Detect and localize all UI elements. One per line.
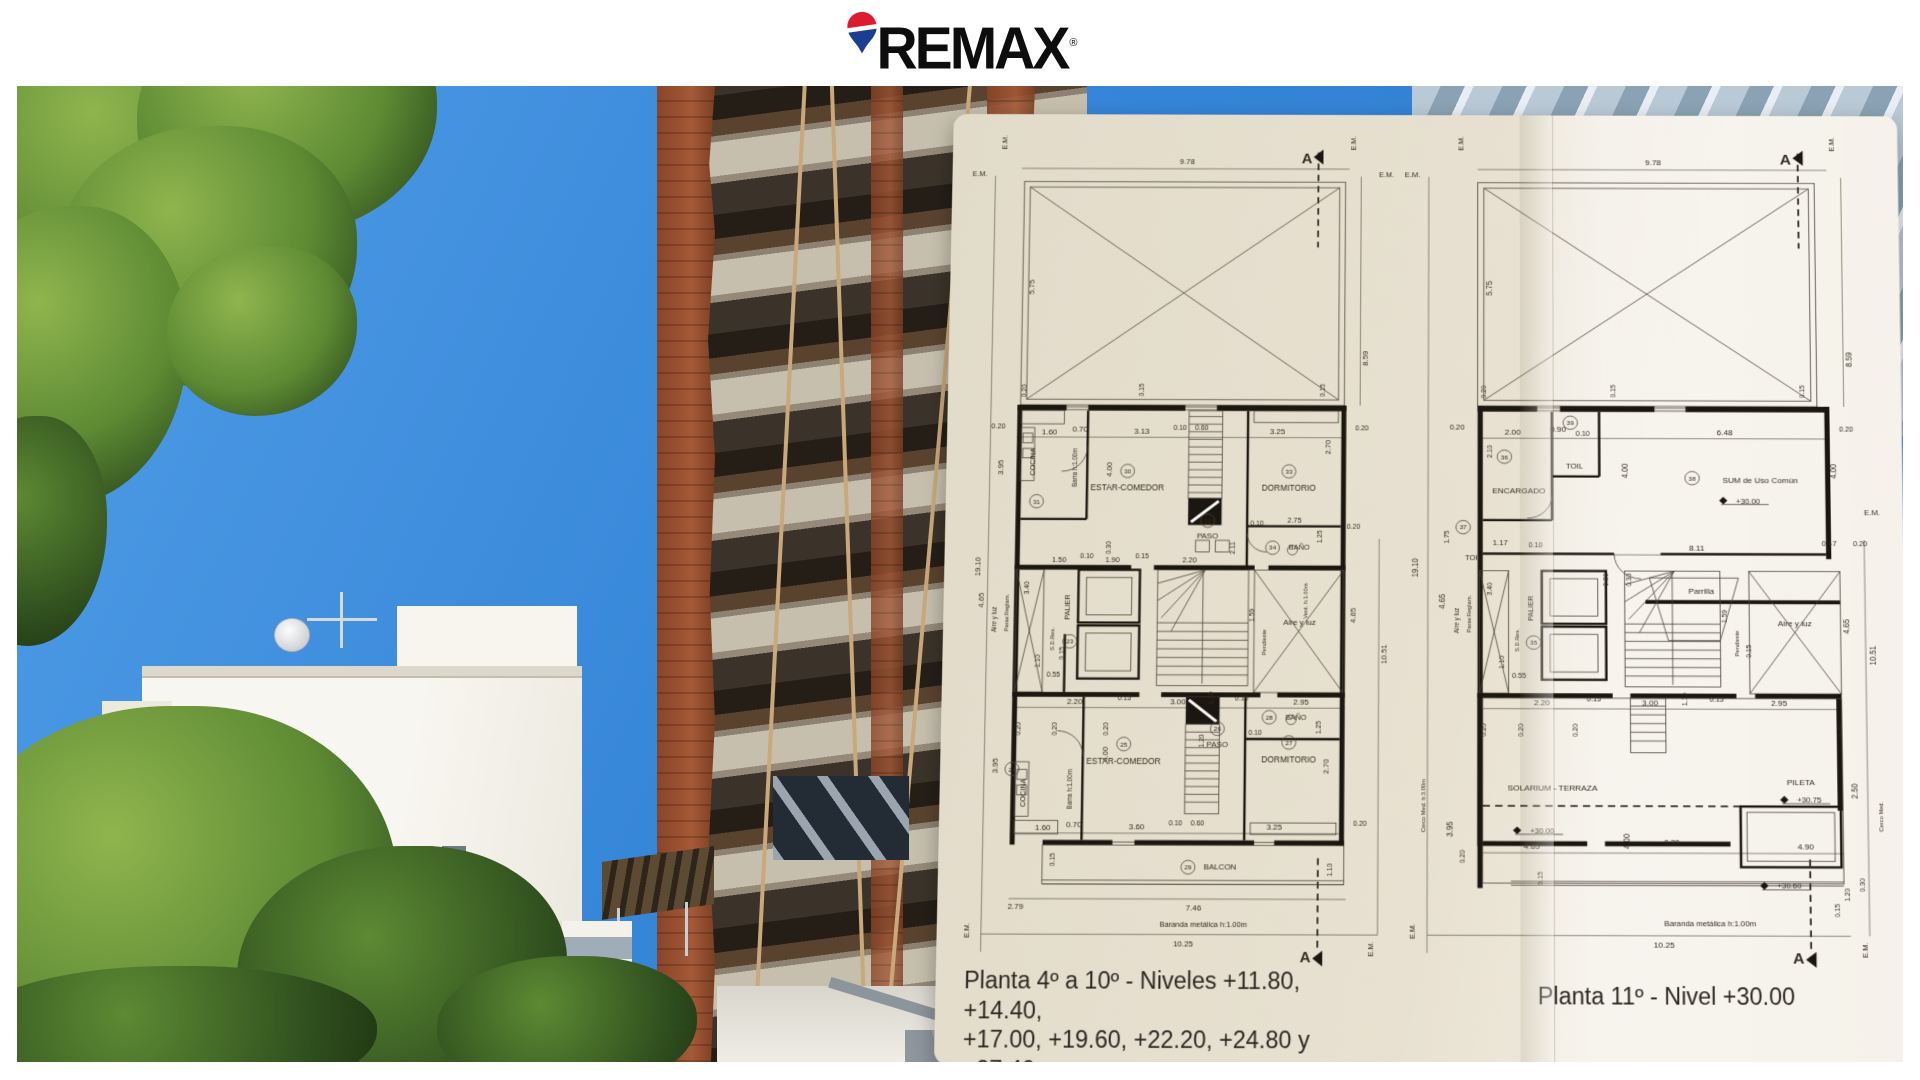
left-label: DORMITORIO <box>1261 755 1316 764</box>
left-label: 7.46 <box>1186 904 1202 913</box>
right-label: +30.60 <box>1777 882 1801 891</box>
right-label: +30.00 <box>1736 497 1760 506</box>
left-label: BAÑO <box>1289 543 1310 552</box>
left-label: E.M. <box>972 169 987 178</box>
remax-logo: REMAX® <box>845 15 1076 72</box>
left-label: E.M. <box>1379 170 1394 179</box>
dark-stair-structure <box>773 776 909 860</box>
right-label: 0.20 <box>1481 723 1488 736</box>
left-label: 0.20 <box>1022 384 1029 397</box>
right-label: 1.10 <box>1682 693 1689 706</box>
right-label: 4.00 <box>1621 463 1630 478</box>
left-label: S.D.Res. <box>1050 627 1057 650</box>
right-label: A <box>1793 952 1805 968</box>
left-label: 2.75 <box>1287 515 1301 524</box>
left-label: 28 <box>1266 715 1274 722</box>
left-label: 0.20 <box>1355 425 1369 432</box>
right-label: 4.65 <box>1437 593 1446 609</box>
left-label: Pendiente <box>1262 629 1268 655</box>
left-label: 2.11 <box>1230 542 1237 555</box>
left-label: 2.79 <box>1008 901 1024 910</box>
left-label: E.M. <box>962 922 972 937</box>
left-label: COCINA <box>1018 779 1028 808</box>
left-label: 2.20 <box>1067 697 1083 706</box>
left-label: PALIER <box>1063 595 1073 620</box>
brand-text: REMAX® <box>877 19 1076 78</box>
caption-planta-11: Planta 11º - Nivel +30.00 <box>1538 982 1884 1012</box>
left-label: Parav.Reglam. <box>1004 594 1011 632</box>
right-label: 0.15 <box>1835 904 1843 918</box>
right-label: 0.20 <box>1460 850 1467 864</box>
right-label: Aire y luz <box>1778 619 1812 628</box>
right-label: 2.20 <box>1534 698 1551 707</box>
satellite-dish <box>274 618 310 652</box>
right-label: 37 <box>1459 525 1467 532</box>
right-label: 2.95 <box>1771 699 1788 708</box>
floorplan-planta-4-a-10: E.M.E.M.9.78AE.M.E.M.19.105.758.590.200.… <box>952 124 1396 967</box>
left-label: 3.95 <box>991 758 1001 773</box>
left-label: Aire y luz <box>1283 618 1316 627</box>
right-label: 2.50 <box>1850 783 1860 799</box>
right-label: Cerco Med. <box>1878 801 1885 832</box>
right-label: E.M. <box>1827 137 1836 151</box>
left-label: 1.10 <box>1034 654 1041 667</box>
left-label: 0.15 <box>1118 695 1132 702</box>
left-label: 0.20 <box>1353 821 1367 828</box>
left-label: 1.60 <box>1035 823 1051 832</box>
left-label: 0.20 <box>1015 722 1022 735</box>
right-label: 9.78 <box>1645 159 1662 168</box>
left-label: 0.60 <box>1191 821 1205 828</box>
right-label: 0.20 <box>1481 385 1488 398</box>
left-label: 3.25 <box>1266 823 1282 832</box>
left-label: 4.00 <box>1105 462 1114 477</box>
listing-photo: E.M.E.M.9.78AE.M.E.M.19.105.758.590.200.… <box>17 86 1903 1062</box>
parapet <box>142 666 582 678</box>
right-label: 1.20 <box>1845 888 1853 902</box>
left-label: 10.25 <box>1173 939 1193 948</box>
right-label: +30.00 <box>1530 826 1554 835</box>
left-label: 4.65 <box>976 593 986 608</box>
right-label: PALIER <box>1526 596 1535 621</box>
right-label: 0.10 <box>1528 542 1542 549</box>
right-label: 3.95 <box>1445 821 1455 837</box>
left-label: 3.95 <box>996 460 1005 475</box>
level-marker-icon <box>1760 882 1768 890</box>
left-label: 0.70 <box>1066 820 1082 829</box>
left-label: 0.15 <box>1320 384 1327 397</box>
right-label: 0.15 <box>1587 696 1601 703</box>
left-label: Barra h:1.00m <box>1072 448 1080 487</box>
right-label: 0.15 <box>1746 645 1753 658</box>
right-label: 35 <box>1530 640 1538 647</box>
left-label: 1.50 <box>1052 555 1067 564</box>
floorplan-planta-11: E.M.E.M.9.78AE.M.19.105.758.590.200.150.… <box>1395 125 1899 968</box>
left-label: 1.20 <box>1198 734 1205 747</box>
floorplan-paper: E.M.E.M.9.78AE.M.E.M.19.105.758.590.200.… <box>934 114 1903 1062</box>
scaffold-leg <box>685 902 688 956</box>
left-label: 2.95 <box>1293 697 1309 706</box>
left-label: 34 <box>1269 545 1277 552</box>
right-label: A <box>1780 153 1792 168</box>
left-label: 0.15 <box>1135 553 1149 560</box>
left-label: BALCON <box>1203 863 1236 872</box>
right-label: Parrilla <box>1688 587 1714 596</box>
right-label: Aire y luz <box>1454 608 1461 634</box>
right-label: Parav.Reglam. <box>1467 595 1473 633</box>
right-label: 8.11 <box>1689 544 1705 553</box>
left-label: 0.55 <box>1047 671 1061 678</box>
registered-mark: ® <box>1069 36 1077 48</box>
left-label: A <box>1300 950 1312 966</box>
caption-line: Planta 4º a 10º - Niveles +11.80, +14.40… <box>963 966 1330 1026</box>
right-label: 10.51 <box>1869 646 1879 665</box>
right-label: E.M. <box>1864 509 1880 518</box>
right-label: 0.10 <box>1576 431 1590 438</box>
left-label: BAÑO <box>1285 713 1307 722</box>
right-label: 2.00 <box>1505 428 1522 437</box>
left-label: 3.60 <box>1129 822 1145 831</box>
right-label: 4.65 <box>1841 618 1851 634</box>
right-label: 0.20 <box>1518 723 1525 736</box>
left-label: 30 <box>1124 468 1132 475</box>
left-label: E.M. <box>1349 136 1358 150</box>
brand-name: REMAX <box>877 15 1068 82</box>
left-label: 0.30 <box>1106 541 1113 554</box>
header: REMAX® <box>0 0 1920 86</box>
left-label: 0.15 <box>1058 647 1065 660</box>
right-label: 36 <box>1501 454 1509 461</box>
left-label: ESTAR-COMEDOR <box>1090 483 1164 492</box>
level-marker-icon <box>1513 826 1521 834</box>
right-label: E.M. <box>1860 943 1870 958</box>
left-label: 0.20 <box>1103 722 1110 735</box>
left-label: 1.25 <box>1316 721 1323 734</box>
right-label: 4.00 <box>1829 463 1839 478</box>
right-label: 19.10 <box>1410 558 1419 578</box>
right-label: 0.30 <box>1859 878 1867 892</box>
left-label: 1.59 <box>1249 608 1256 621</box>
left-label: 0.20 <box>991 421 1006 430</box>
right-label: E.M. <box>1407 924 1417 939</box>
right-label: 2.10 <box>1487 445 1494 458</box>
left-label: 3.40 <box>1024 581 1031 594</box>
right-label: 1.59 <box>1721 610 1728 623</box>
left-label: 1.10 <box>1327 863 1334 877</box>
left-label: 0.70 <box>1072 425 1087 434</box>
level-marker-icon <box>1719 497 1727 505</box>
left-label: 1.60 <box>1042 427 1057 436</box>
left-label: 4.00 <box>1100 747 1110 762</box>
left-label: 4.65 <box>1348 608 1357 623</box>
right-label: E.M. <box>1456 136 1465 150</box>
right-label: 0.15 <box>1537 872 1544 886</box>
left-label: 10.51 <box>1379 645 1388 664</box>
left-label: 0.15 <box>1139 383 1146 396</box>
right-label: Cerco Med. h:3.00m <box>1421 779 1427 832</box>
left-plan-geometry <box>980 149 1381 967</box>
left-label: 3.13 <box>1134 427 1149 436</box>
right-label: Baranda metálica h:1.00m <box>1664 919 1756 928</box>
right-label: 0.30 <box>1603 573 1610 586</box>
right-label: 3.40 <box>1487 582 1494 595</box>
right-label: TOIL <box>1465 553 1482 562</box>
right-label: 5.75 <box>1485 280 1494 295</box>
left-label: ESTAR-COMEDOR <box>1086 757 1161 766</box>
right-label: 6.48 <box>1717 428 1734 437</box>
left-label: 2.70 <box>1323 440 1332 455</box>
left-label: 33 <box>1285 469 1293 476</box>
left-label: 27 <box>1285 740 1293 747</box>
left-label: 0.10 <box>1248 730 1262 737</box>
right-label: 0.20 <box>1450 423 1465 432</box>
right-label: 38 <box>1688 476 1696 483</box>
right-label: 4.00 <box>1623 833 1633 849</box>
right-label: 1.10 <box>1499 655 1506 668</box>
right-label: 0.15 <box>1710 697 1724 704</box>
left-label: Aire y luz <box>991 607 999 633</box>
right-label: 0.20 <box>1837 724 1845 737</box>
left-label: 31 <box>1033 499 1041 506</box>
left-label: 0.20 <box>1347 524 1361 531</box>
caption-line: Planta 11º - Nivel +30.00 <box>1538 982 1884 1012</box>
left-label: 19.10 <box>973 557 983 576</box>
left-label: 25 <box>1120 741 1128 748</box>
left-label: DORMITORIO <box>1262 484 1316 493</box>
antenna <box>307 618 377 621</box>
left-label: 0.10 <box>1174 425 1188 432</box>
tree-foliage <box>167 246 357 416</box>
left-label: Vent. h:1.60m <box>1303 583 1309 619</box>
left-label: Barra h:1.00m <box>1067 769 1075 809</box>
left-label: 0.15 <box>1049 853 1056 867</box>
right-label: 0.20 <box>1572 723 1579 736</box>
right-label: 0.15 <box>1799 385 1806 398</box>
right-label: TOIL <box>1566 462 1583 471</box>
right-label: S.D.Res. <box>1515 628 1521 651</box>
left-label: 9.78 <box>1180 157 1195 166</box>
right-label: PILETA <box>1787 778 1816 787</box>
right-label: 0.20 <box>1839 427 1853 434</box>
left-label: 32 <box>1204 518 1212 525</box>
caption-line: +17.00, +19.60, +22.20, +24.80 y +27.40 <box>962 1025 1330 1062</box>
left-label: A <box>1302 152 1313 167</box>
left-label: 0.20 <box>1051 722 1058 735</box>
left-label: Baranda metálica h:1.00m <box>1160 919 1248 928</box>
left-label: 8.59 <box>1361 351 1370 366</box>
right-label: +30.75 <box>1797 796 1821 805</box>
left-label: 3.25 <box>1270 427 1285 436</box>
remax-balloon-icon <box>845 11 879 62</box>
left-label: E.M. <box>1001 135 1010 149</box>
right-label: 0.20 <box>1853 541 1867 548</box>
right-label: 1.17 <box>1493 538 1508 547</box>
left-label: 0.10 <box>1080 553 1094 560</box>
left-label: PASO <box>1197 531 1218 540</box>
left-label: 2.70 <box>1321 759 1330 774</box>
left-label: 0.10 <box>1169 820 1183 827</box>
right-label: 39 <box>1567 420 1575 427</box>
right-label: 0.15 <box>1610 385 1617 398</box>
right-label: 1.75 <box>1443 530 1450 543</box>
level-marker-icon <box>1780 796 1788 804</box>
left-label: 0.60 <box>1195 425 1209 432</box>
left-label: E.M. <box>1366 941 1375 956</box>
right-label: 4.65 <box>1524 842 1541 851</box>
right-label: ENCARGADO <box>1492 487 1545 496</box>
left-label: COCINA <box>1028 448 1038 476</box>
right-label: 0.47 <box>1821 539 1836 548</box>
right-label: 0.55 <box>1512 673 1526 680</box>
caption-planta-4-a-10: Planta 4º a 10º - Niveles +11.80, +14.40… <box>962 966 1330 1062</box>
left-label: 29 <box>1184 865 1192 872</box>
left-label: 0.10 <box>1250 520 1264 527</box>
left-label: 1.10 <box>1209 691 1216 704</box>
right-label: 4.90 <box>1798 843 1815 852</box>
left-label: 5.75 <box>1027 280 1036 295</box>
right-label: SUM de Uso Común <box>1722 476 1798 485</box>
right-label: 8.59 <box>1844 352 1854 367</box>
right-label: E.M. <box>1405 170 1421 179</box>
right-label: 0.30 <box>1664 838 1679 847</box>
right-label: 10.25 <box>1654 941 1676 950</box>
left-label: 0.15 <box>1235 695 1249 702</box>
right-label: 0.30 <box>1626 573 1633 586</box>
left-label: 1.25 <box>1317 530 1324 543</box>
left-label: 23 <box>1066 639 1074 646</box>
right-label: Pendiente <box>1735 630 1742 657</box>
right-label: SOLARIUM - TERRAZA <box>1508 783 1598 792</box>
left-label: 24 <box>1008 766 1016 773</box>
left-label: 2.20 <box>1182 555 1197 564</box>
left-label: 3.00 <box>1170 697 1186 706</box>
left-label: 1.90 <box>1105 555 1120 564</box>
